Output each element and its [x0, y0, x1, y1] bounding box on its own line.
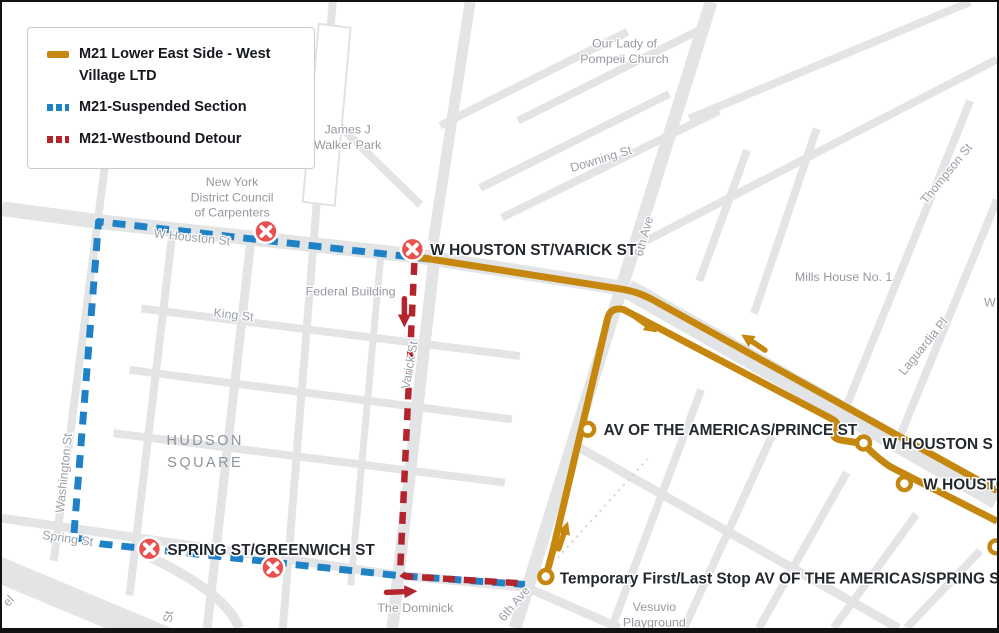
poi-label: Federal Building	[306, 285, 396, 299]
street	[906, 551, 980, 628]
street	[527, 587, 620, 628]
legend-swatch-dashed-line-icon	[47, 104, 69, 111]
legend-item: M21 Lower East Side - West Village LTD	[47, 44, 300, 87]
bus-stop-marker	[857, 437, 870, 450]
poi-label: James JWalker Park	[314, 123, 382, 152]
bus-stop-marker	[539, 570, 552, 583]
bus-stop-label: W HOUSTON S	[882, 436, 992, 453]
poi-label: New YorkDistrict Councilof Carpenters	[191, 175, 274, 220]
legend-item: M21-Westbound Detour	[47, 129, 300, 151]
street-label: W	[984, 296, 996, 310]
bus-stop-label: AV OF THE AMERICAS/PRINCE ST	[604, 422, 858, 439]
street	[754, 129, 817, 314]
closed-stop-marker	[261, 556, 284, 579]
street	[639, 59, 997, 244]
legend-swatch-solid-line-icon	[47, 51, 69, 58]
bus-stop-marker	[898, 477, 911, 490]
street	[129, 370, 511, 419]
street	[684, 431, 774, 628]
street-label: el	[2, 593, 17, 610]
bus-stop-marker	[990, 540, 997, 553]
street	[699, 150, 747, 281]
legend-item-label: M21 Lower East Side - West Village LTD	[79, 44, 287, 87]
poi-label: VesuvioPlayground	[623, 600, 686, 628]
closed-stop-label: W HOUSTON ST/VARICK ST	[430, 242, 637, 259]
closed-stop-marker	[138, 538, 161, 561]
poi-label: The Dominick	[377, 601, 454, 615]
map-viewport: W Houston StKing StVarick StWashington S…	[0, 0, 999, 633]
street-label: Laguardia Pl	[896, 315, 951, 378]
bus-stop-marker	[581, 423, 594, 436]
bus-stop-label: W HOUSTO	[923, 477, 997, 494]
poi-label: Our Lady ofPompeii Church	[580, 37, 669, 66]
poi-label: Mills House No. 1	[795, 270, 893, 284]
street	[392, 241, 436, 628]
legend-item-label: M21-Suspended Section	[79, 97, 247, 119]
street-label: St	[160, 609, 176, 623]
bus-stop-label: Temporary First/Last Stop AV OF THE AMER…	[560, 571, 997, 588]
legend-item-label: M21-Westbound Detour	[79, 129, 241, 151]
legend-item: M21-Suspended Section	[47, 97, 300, 119]
street	[351, 259, 381, 585]
legend-swatch-dashed-line-icon	[47, 136, 69, 143]
legend: M21 Lower East Side - West Village LTDM2…	[27, 27, 315, 169]
street	[689, 2, 970, 119]
street	[2, 568, 166, 628]
street	[141, 309, 519, 356]
street	[759, 473, 847, 628]
closed-stop-marker	[254, 220, 277, 243]
closed-stop-marker	[401, 238, 424, 261]
street-label: Washington St	[53, 432, 75, 513]
